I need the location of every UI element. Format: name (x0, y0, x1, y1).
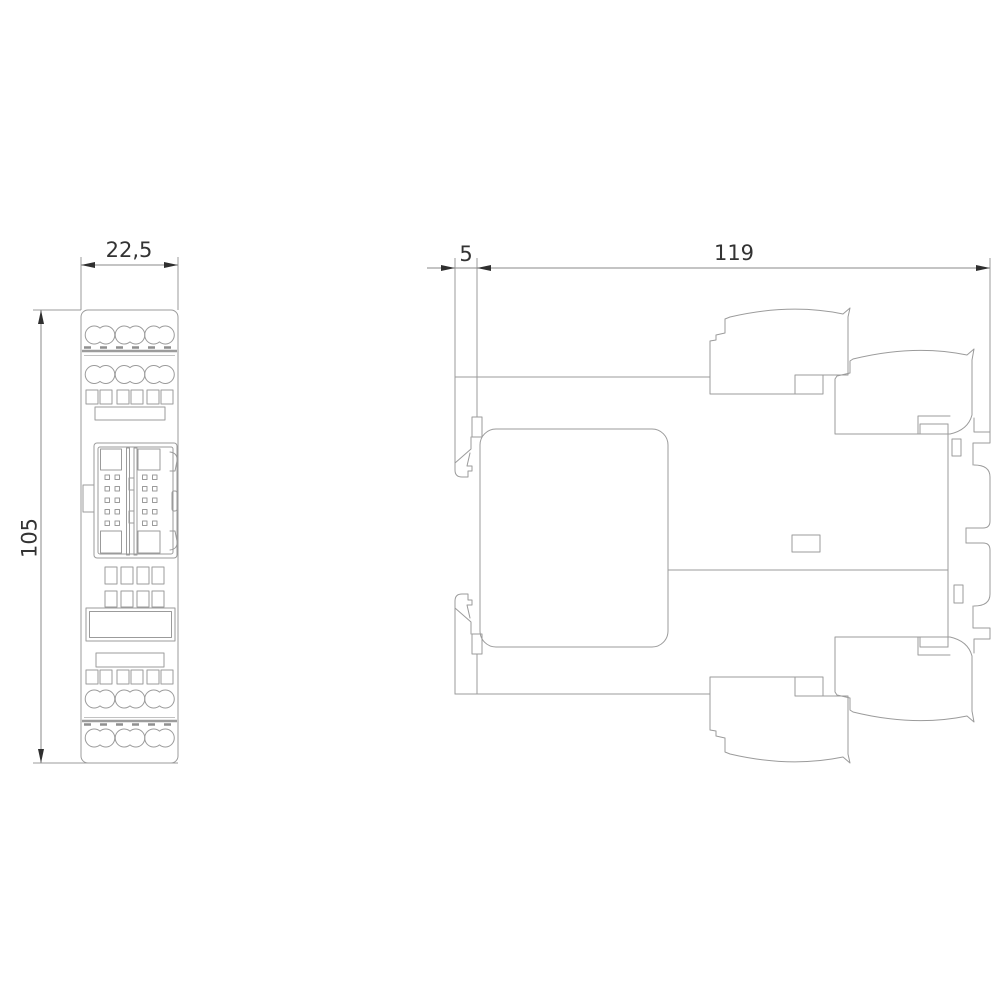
marker-strip-top (95, 407, 165, 420)
terminal-row-bottom-1 (85, 690, 174, 708)
terminal-block-seam (795, 375, 823, 394)
side-view: 5 119 (427, 241, 990, 763)
connector-pad (138, 531, 160, 553)
connector-pin-grid-left (105, 475, 120, 526)
connector-pin (115, 510, 120, 515)
connector-pin (153, 498, 158, 503)
terminal-opening (85, 326, 115, 344)
front-step-bottom (920, 637, 948, 647)
side-offset-label: 5 (459, 242, 472, 266)
terminal-opening (115, 729, 145, 747)
dimension-arrow-icon (477, 265, 491, 271)
terminal-slot (100, 390, 112, 404)
indicator-window (152, 591, 164, 607)
connector-outline (94, 443, 177, 558)
indicator-window (137, 567, 149, 584)
connector-pin (143, 521, 148, 526)
dimension-arrow-icon (441, 265, 455, 271)
back-plate (455, 417, 482, 694)
indicator-window (137, 591, 149, 607)
drawing-canvas: 22,5 105 (0, 0, 1000, 1000)
connector-pin (143, 498, 148, 503)
front-step-top (920, 424, 948, 434)
extension-line (33, 310, 178, 763)
terminal-slot (86, 670, 98, 684)
connector-pad (138, 449, 160, 470)
marker-strip-bottom (96, 653, 164, 667)
side-dimensions: 5 119 (427, 241, 990, 463)
terminal-block-seam (918, 416, 950, 434)
terminal-row-top-1 (85, 326, 174, 344)
housing-mark (792, 535, 820, 552)
label-window-inner (90, 612, 172, 638)
front-view: 22,5 105 (18, 238, 179, 763)
terminal-slot (100, 670, 112, 684)
connector-pin (143, 475, 148, 480)
terminal-slot (161, 670, 173, 684)
terminal-slot-row-top (86, 390, 173, 404)
terminal-slot (147, 670, 159, 684)
terminal-slot (131, 390, 143, 404)
front-tab-lower (966, 543, 990, 606)
terminal-slot-row-bottom (86, 670, 173, 684)
indicator-window (152, 567, 164, 584)
connector-pin (143, 510, 148, 515)
dimension-arrow-icon (164, 262, 178, 268)
connector-pad (101, 531, 122, 553)
clip-tab (472, 417, 482, 437)
connector-center-rail (127, 448, 130, 555)
terminal-block-outline (710, 677, 850, 763)
front-module (81, 310, 178, 763)
indicator-window (121, 567, 133, 584)
terminal-block-outline (835, 349, 974, 434)
indicator-row-1 (105, 567, 164, 584)
connector-hook (170, 531, 177, 550)
terminal-opening (85, 690, 115, 708)
dimension-arrow-icon (81, 262, 95, 268)
dimension-arrow-icon (976, 265, 990, 271)
indicator-row-2 (105, 591, 164, 607)
front-height-label: 105 (18, 518, 42, 558)
terminal-slot (147, 390, 159, 404)
connector-pin (153, 521, 158, 526)
terminal-block-outline (710, 308, 850, 394)
terminal-slot (161, 390, 173, 404)
connector-pin (105, 498, 110, 503)
terminal-opening (85, 366, 115, 384)
front-slot (954, 585, 963, 603)
connector-pin (115, 475, 120, 480)
terminal-opening (145, 366, 175, 384)
connector-pin (115, 521, 120, 526)
front-panel (920, 418, 990, 653)
terminal-opening (85, 729, 115, 747)
terminal-opening (115, 690, 145, 708)
dimension-drawing: 22,5 105 (0, 0, 1000, 1000)
terminal-block-bottom-left (710, 677, 850, 763)
front-slot (952, 439, 961, 456)
terminal-seam-top (82, 348, 177, 356)
indicator-window (121, 591, 133, 607)
terminal-slot (86, 390, 98, 404)
terminal-row-bottom-2 (85, 729, 174, 747)
terminal-slot (117, 390, 129, 404)
connector-pin (105, 521, 110, 526)
terminal-row-top-2 (85, 366, 174, 384)
connector-pad (101, 449, 122, 470)
din-clip-bottom-foot (455, 594, 472, 618)
front-width-dimension: 22,5 (81, 238, 178, 310)
clip-tab (472, 634, 482, 654)
terminal-block-bottom-right (835, 637, 974, 722)
terminal-opening (115, 366, 145, 384)
connector-pin (105, 487, 110, 492)
terminal-slot (117, 670, 129, 684)
connector-side-tab (83, 485, 94, 512)
terminal-opening (145, 690, 175, 708)
front-edge-bottom (973, 606, 990, 653)
terminal-opening (145, 326, 175, 344)
connector-pin-grid-right (143, 475, 158, 526)
connector-pin (105, 510, 110, 515)
front-edge-top (973, 418, 990, 465)
indicator-window (105, 567, 117, 584)
connector-pin (105, 475, 110, 480)
terminal-block-top-right (835, 349, 974, 434)
terminal-seam-bottom (82, 718, 177, 725)
side-depth-label: 119 (714, 241, 754, 265)
indicator-window (105, 591, 117, 607)
connector-pin (153, 475, 158, 480)
connector-center-rail (134, 448, 137, 555)
label-window (86, 608, 175, 641)
terminal-block-top-left (710, 308, 850, 394)
terminal-opening (145, 729, 175, 747)
connector-pin (153, 487, 158, 492)
dimension-arrow-icon (38, 310, 44, 324)
connector-pin (153, 510, 158, 515)
terminal-block-seam (918, 637, 950, 655)
device-body (480, 429, 668, 647)
connector-block (83, 443, 177, 558)
terminal-opening (115, 326, 145, 344)
connector-pin (115, 498, 120, 503)
label-window-outer (86, 608, 175, 641)
front-tab-upper (966, 465, 990, 528)
connector-pin (115, 487, 120, 492)
terminal-block-outline (835, 637, 974, 722)
front-width-label: 22,5 (106, 238, 153, 262)
connector-pin (143, 487, 148, 492)
din-clip-top-foot (455, 453, 472, 477)
terminal-block-seam (795, 677, 823, 696)
terminal-slot (131, 670, 143, 684)
dimension-arrow-icon (38, 749, 44, 763)
connector-hook (170, 452, 177, 471)
